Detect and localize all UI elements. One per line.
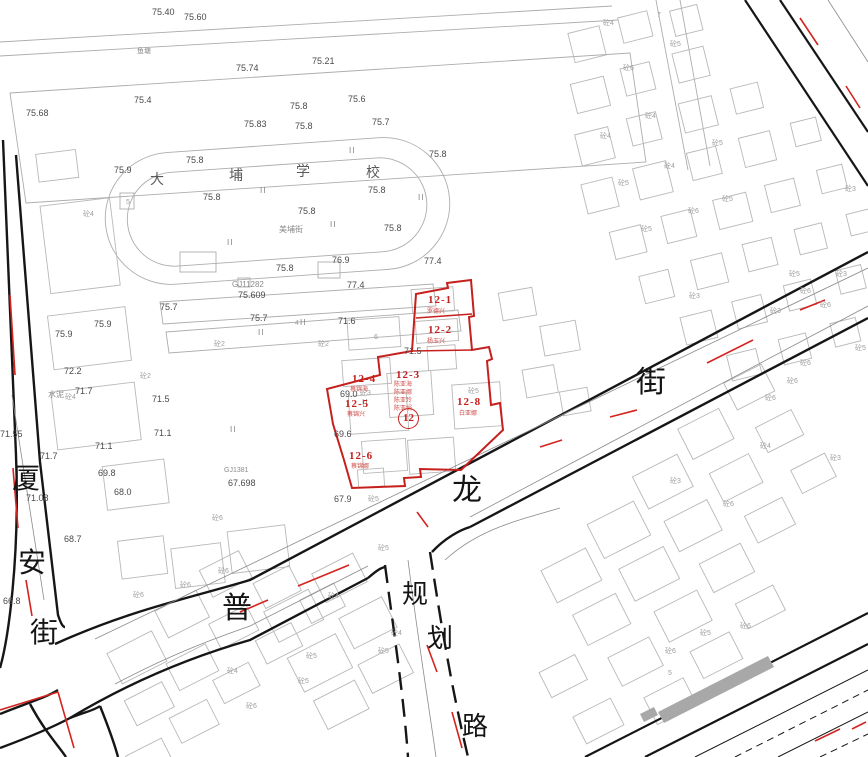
- building-type-label: 砼5: [712, 140, 723, 147]
- street-name-char: 划: [427, 626, 453, 652]
- subparcel-id-label: 12-4: [352, 374, 376, 385]
- building-type-label: 砼4: [760, 443, 771, 450]
- elevation-label: 75.4: [134, 96, 152, 105]
- building-type-label: 砼4: [391, 630, 402, 637]
- elevation-label: 75.8: [295, 122, 313, 131]
- storey-mark: II: [300, 319, 306, 327]
- school-name-char: 学: [296, 166, 310, 180]
- elevation-label: 71.7: [75, 387, 93, 396]
- storey-mark: II: [330, 221, 336, 229]
- storey-mark: II: [227, 239, 233, 247]
- owner-name-label: 杨玉兴: [427, 339, 445, 345]
- subparcel-id-label: 12-8: [457, 397, 481, 408]
- elevation-label: 75.8: [203, 193, 221, 202]
- elevation-label: 75.7: [160, 303, 178, 312]
- label-layer: 厦安街普龙街规划路大埔学校美埔街鱼塘水泥75.4075.6075.7475.21…: [0, 0, 868, 757]
- street-name-char: 厦: [12, 466, 40, 494]
- elevation-label: 71.7: [40, 452, 58, 461]
- building-type-label: 砼5: [700, 630, 711, 637]
- building-type-label: 砼3: [360, 390, 371, 397]
- building-type-label: 砼5: [641, 226, 652, 233]
- elevation-label: 75.68: [26, 109, 49, 118]
- building-type-label: 砼3: [830, 455, 841, 462]
- storey-mark: II: [230, 426, 236, 434]
- map-annotation: 水泥: [48, 391, 64, 399]
- elevation-label: 75.83: [244, 120, 267, 129]
- building-type-label: 砼4: [600, 133, 611, 140]
- building-type-label: 砼5: [368, 496, 379, 503]
- elevation-label: 71.1: [154, 429, 172, 438]
- elevation-label: 75.9: [114, 166, 132, 175]
- subparcel-id-label: 12-2: [428, 325, 452, 336]
- building-type-label: 砼5: [468, 388, 479, 395]
- subparcel-id-label: 12-5: [345, 399, 369, 410]
- elevation-label: 71.55: [0, 430, 23, 439]
- elevation-label: 77.4: [424, 257, 442, 266]
- building-type-label: 砼5: [855, 345, 866, 352]
- storey-mark: II: [260, 187, 266, 195]
- owner-name-label: 陈亚娟: [394, 406, 412, 412]
- street-name-char: 路: [462, 714, 488, 740]
- elevation-label: 77.4: [347, 281, 365, 290]
- elevation-label: 75.9: [55, 330, 73, 339]
- elevation-label: 75.21: [312, 57, 335, 66]
- elevation-label: 75.7: [250, 314, 268, 323]
- building-type-label: 砼5: [789, 271, 800, 278]
- elevation-label: 75.8: [276, 264, 294, 273]
- building-type-label: 5: [668, 670, 672, 677]
- building-type-label: 砼5: [618, 180, 629, 187]
- elevation-label: 75.7: [372, 118, 390, 127]
- building-type-label: 5: [126, 199, 130, 206]
- building-type-label: 砼6: [212, 515, 223, 522]
- school-name-char: 大: [150, 174, 164, 188]
- building-type-label: 砼4: [664, 163, 675, 170]
- building-type-label: 砼5: [298, 678, 309, 685]
- building-type-label: 砼4: [83, 211, 94, 218]
- map-annotation: 鱼塘: [137, 48, 151, 55]
- building-type-label: 砼5: [306, 653, 317, 660]
- building-type-label: 砼3: [770, 308, 781, 315]
- building-type-label: 砼2: [140, 373, 151, 380]
- building-type-label: 砼4: [603, 20, 614, 27]
- elevation-label: 75.8: [186, 156, 204, 165]
- owner-name-label: 陈亚海: [394, 382, 412, 388]
- building-type-label: 7: [657, 12, 661, 19]
- building-type-label: 砼6: [800, 360, 811, 367]
- building-type-label: 砼6: [688, 208, 699, 215]
- owner-name-label: 陈亚娜: [394, 390, 412, 396]
- map-annotation: GJ1381: [224, 467, 249, 474]
- elevation-label: 75.8: [290, 102, 308, 111]
- elevation-label: 71.1: [95, 442, 113, 451]
- owner-name-label: 蔡锦娜: [351, 464, 369, 470]
- building-type-label: 6: [374, 334, 378, 341]
- elevation-label: 75.8: [429, 150, 447, 159]
- elevation-label: 75.8: [368, 186, 386, 195]
- school-name-char: 校: [366, 167, 380, 181]
- elevation-label: 75.40: [152, 8, 175, 17]
- building-type-label: 砼6: [665, 648, 676, 655]
- building-type-label: 砼4: [328, 593, 339, 600]
- cadastral-map-canvas: 厦安街普龙街规划路大埔学校美埔街鱼塘水泥75.4075.6075.7475.21…: [0, 0, 868, 757]
- building-type-label: 砼5: [378, 648, 389, 655]
- storey-mark: II: [258, 329, 264, 337]
- building-type-label: 砼6: [246, 703, 257, 710]
- storey-mark: II: [349, 147, 355, 155]
- map-annotation: 美埔街: [279, 226, 303, 234]
- elevation-label: 71.5: [152, 395, 170, 404]
- elevation-label: 67.9: [334, 495, 352, 504]
- elevation-label: 68.0: [114, 488, 132, 497]
- building-type-label: 砼4: [65, 394, 76, 401]
- elevation-label: 75.609: [238, 291, 266, 300]
- elevation-label: 69.6: [334, 430, 352, 439]
- street-name-char: 街: [636, 368, 666, 398]
- building-type-label: 砼6: [180, 582, 191, 589]
- building-type-label: 砼6: [133, 592, 144, 599]
- building-type-label: 砼3: [845, 186, 856, 193]
- building-type-label: 砼2: [318, 341, 329, 348]
- elevation-label: 75.8: [384, 224, 402, 233]
- elevation-label: 69.8: [98, 469, 116, 478]
- building-type-label: 4: [295, 320, 299, 327]
- street-name-char: 街: [30, 620, 58, 648]
- owner-name-label: 陈亚玲: [394, 398, 412, 404]
- elevation-label: 71.08: [26, 494, 49, 503]
- elevation-label: 71.6: [338, 317, 356, 326]
- building-type-label: 砼3: [689, 293, 700, 300]
- building-type-label: 砼6: [740, 623, 751, 630]
- building-type-label: 砼5: [378, 545, 389, 552]
- building-type-label: 砼4: [645, 113, 656, 120]
- owner-name-label: 蔡锦兴: [347, 412, 365, 418]
- building-type-label: 砼5: [722, 196, 733, 203]
- building-type-label: 砼6: [787, 378, 798, 385]
- elevation-label: 66.8: [3, 597, 21, 606]
- elevation-label: 76.9: [332, 256, 350, 265]
- building-type-label: 砼6: [765, 395, 776, 402]
- owner-name-label: 白亚娜: [459, 411, 477, 417]
- owner-name-label: 罗德兴: [427, 309, 445, 315]
- building-type-label: 砼5: [670, 41, 681, 48]
- elevation-label: 71.5: [404, 347, 422, 356]
- building-type-label: 砼2: [214, 341, 225, 348]
- subparcel-id-label: 12-3: [396, 370, 420, 381]
- building-type-label: 砼4: [227, 668, 238, 675]
- elevation-label: 75.9: [94, 320, 112, 329]
- elevation-label: 75.8: [298, 207, 316, 216]
- building-type-label: 砼6: [820, 302, 831, 309]
- map-annotation: GJ11282: [232, 281, 264, 289]
- street-name-char: 龙: [452, 476, 482, 506]
- elevation-label: 75.6: [348, 95, 366, 104]
- elevation-label: 72.2: [64, 367, 82, 376]
- building-type-label: 砼6: [218, 568, 229, 575]
- building-type-label: 砼6: [623, 65, 634, 72]
- building-type-label: 砼6: [723, 501, 734, 508]
- elevation-label: 75.60: [184, 13, 207, 22]
- street-name-char: 安: [18, 550, 46, 578]
- building-type-label: 砼3: [670, 478, 681, 485]
- storey-mark: II: [418, 194, 424, 202]
- elevation-label: 68.7: [64, 535, 82, 544]
- street-name-char: 普: [222, 594, 252, 624]
- building-type-label: 砼3: [836, 271, 847, 278]
- building-type-label: 砼6: [800, 288, 811, 295]
- elevation-label: 75.74: [236, 64, 259, 73]
- subparcel-id-label: 12-1: [428, 295, 452, 306]
- elevation-label: 67.698: [228, 479, 256, 488]
- school-name-char: 埔: [229, 170, 243, 184]
- street-name-char: 规: [402, 582, 428, 608]
- subparcel-id-label: 12-6: [349, 451, 373, 462]
